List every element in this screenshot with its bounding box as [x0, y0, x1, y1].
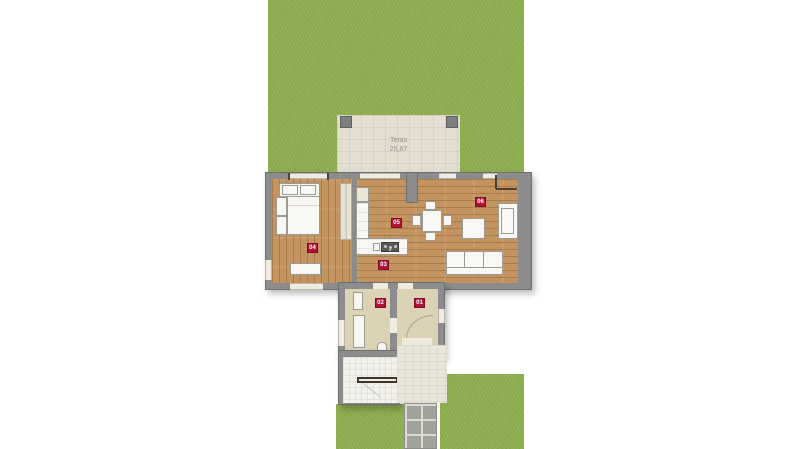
bed	[287, 196, 320, 235]
burner-icon	[394, 245, 397, 248]
garden-path	[404, 403, 437, 449]
bed-pillow-left	[282, 185, 298, 195]
bath-entry-door	[390, 318, 397, 333]
terrace-door	[360, 173, 400, 179]
bed-fold-line	[288, 205, 319, 206]
room-badge-06: 06	[475, 197, 486, 207]
lawn-bottom-right	[440, 374, 524, 449]
room-badge-03: 03	[378, 260, 389, 270]
dining-chair-bottom	[425, 232, 436, 241]
dining-chair-right	[443, 215, 452, 226]
lawn-bottom-left	[336, 404, 404, 449]
sofa-cushion-divider	[483, 252, 484, 267]
sofa-cushion-divider	[464, 252, 465, 267]
coffee-table	[462, 218, 485, 239]
terrace-name: Teras	[337, 136, 460, 145]
terrace-label: Teras 25,67	[337, 136, 460, 154]
entry-window-right	[438, 309, 445, 323]
armchair-cushion	[501, 208, 514, 234]
stove	[381, 242, 399, 252]
sofa	[446, 251, 503, 275]
burner-icon	[384, 245, 387, 248]
kitchen-partition-wall	[406, 172, 418, 203]
bedroom-window-bottom	[290, 283, 323, 290]
kitchen-counter-vertical	[356, 202, 369, 240]
window-frame-tick-right	[327, 173, 329, 180]
kitchen-tall-cabinet	[356, 187, 369, 202]
bathroom-door	[373, 283, 388, 289]
room-badge-01: 01	[414, 298, 425, 308]
open-door-leaf-horizontal	[496, 188, 517, 190]
kitchen-sink	[373, 243, 380, 251]
dining-chair-top	[425, 201, 436, 210]
terrace-post-left	[340, 116, 352, 128]
terrace-post-right	[446, 116, 458, 128]
front-door	[402, 338, 432, 345]
room-badge-04: 04	[307, 243, 318, 253]
bedroom-window-left	[265, 260, 272, 280]
bench	[290, 263, 321, 275]
dresser-upper	[276, 197, 287, 216]
floor-plan-canvas: Teras 25,67	[0, 0, 800, 449]
shower-tub	[353, 315, 365, 348]
dresser-lower	[276, 216, 287, 235]
terrace-area: 25,67	[337, 145, 460, 154]
bathroom-window-left	[338, 320, 345, 346]
dining-table	[422, 210, 442, 232]
room-badge-02: 02	[375, 298, 386, 308]
entry-hall-door	[398, 283, 413, 289]
dining-chair-left	[412, 215, 421, 226]
bedroom-window-top	[289, 173, 329, 179]
entry-porch	[397, 345, 447, 403]
room-badge-05: 05	[391, 218, 402, 228]
bathroom-sink	[353, 292, 363, 310]
burner-icon	[389, 249, 391, 251]
window-frame-tick-left	[288, 173, 290, 180]
wardrobe	[340, 183, 352, 240]
living-terrace-door	[439, 173, 456, 179]
sofa-backrest-line	[447, 267, 502, 268]
bed-pillow-right	[300, 185, 316, 195]
open-door-leaf-vertical	[495, 175, 497, 189]
